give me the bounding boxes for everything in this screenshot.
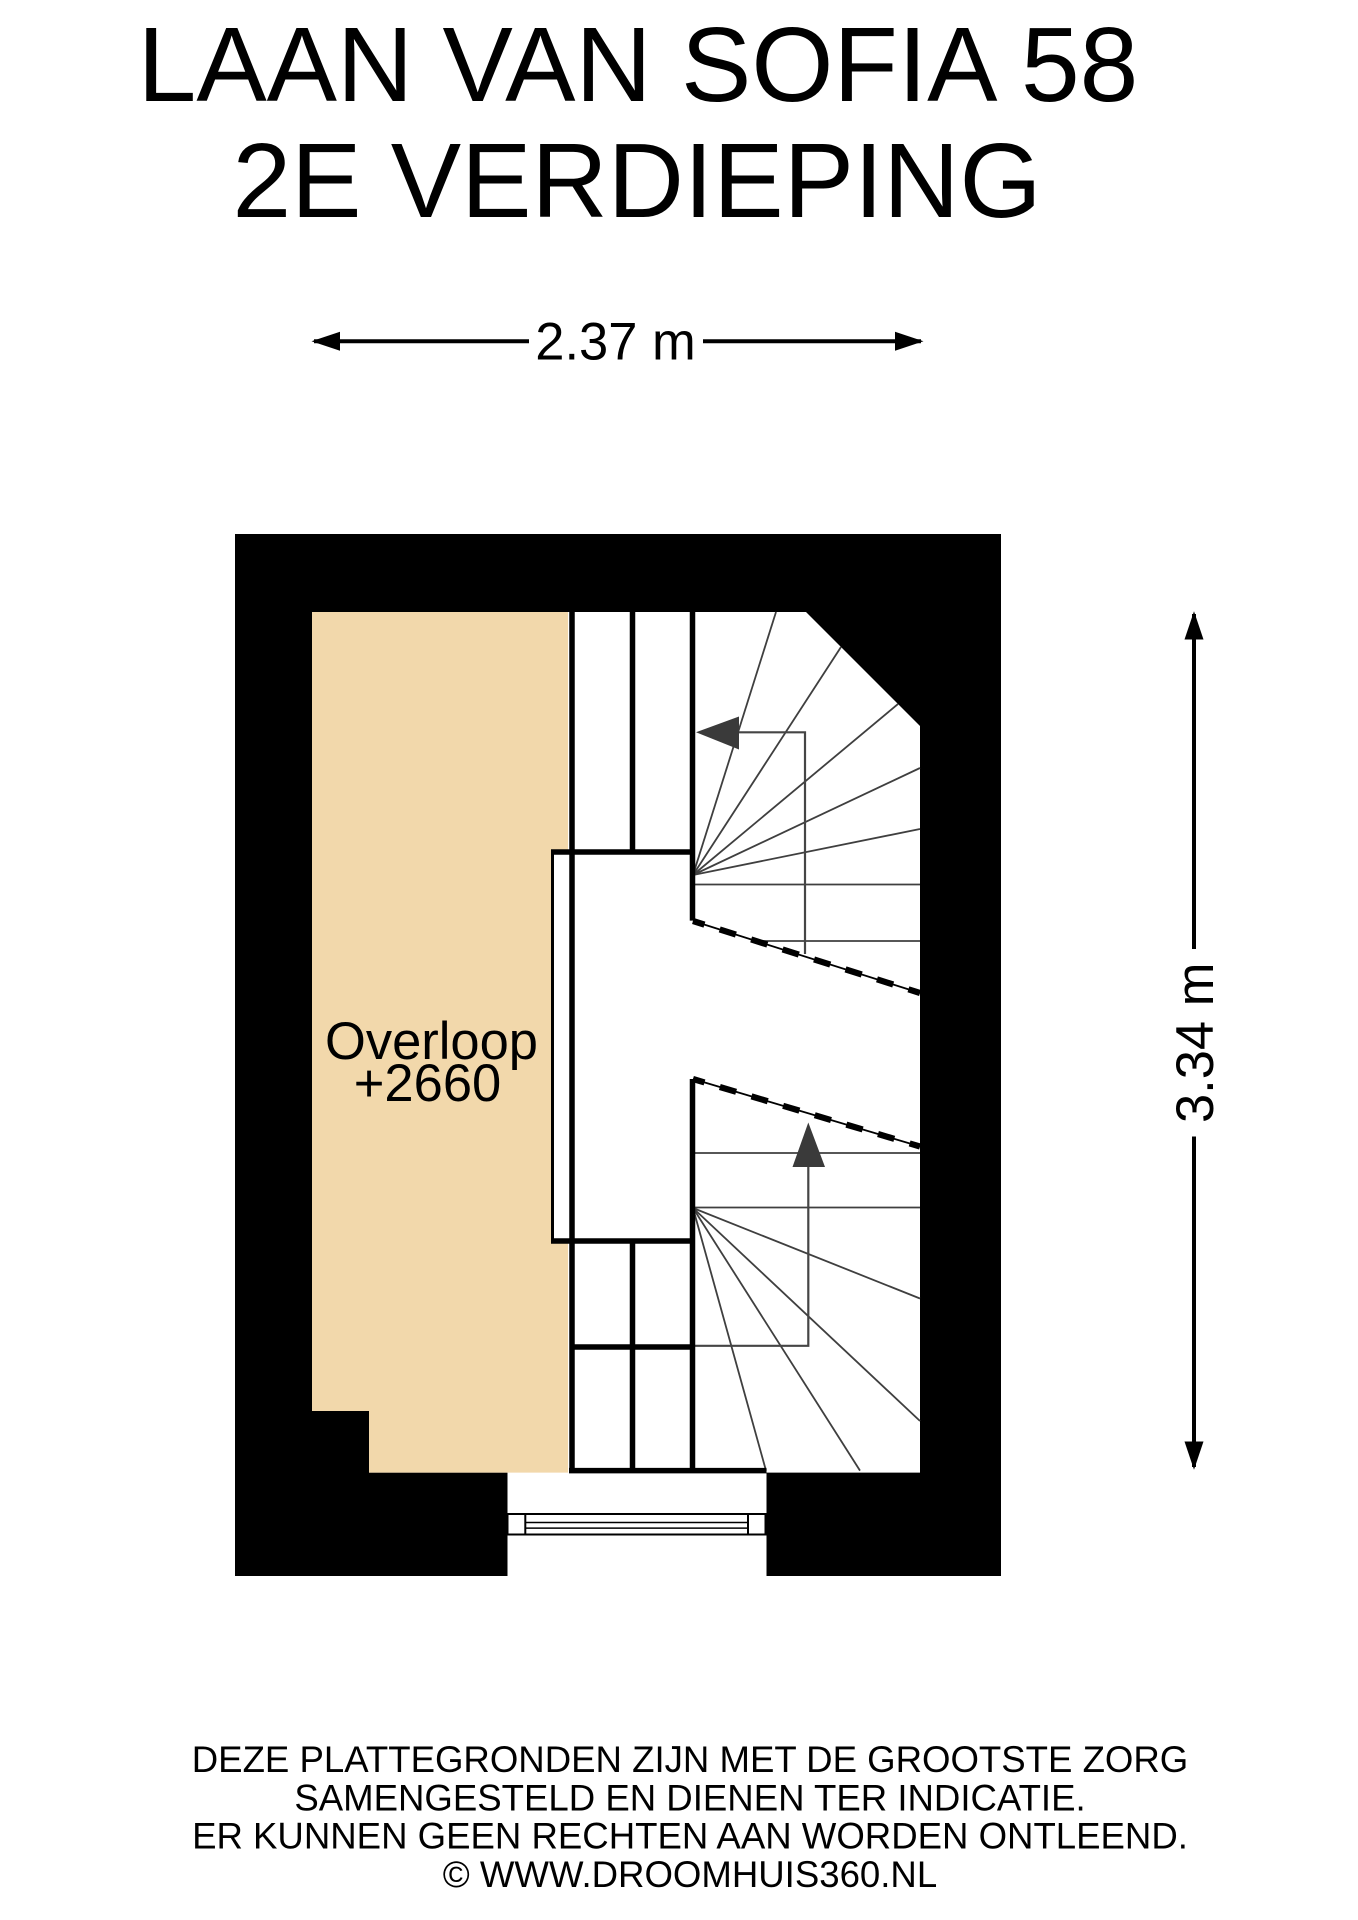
svg-text:LAAN VAN SOFIA 58: LAAN VAN SOFIA 58: [138, 6, 1139, 124]
svg-text:+2660: +2660: [354, 1054, 501, 1113]
svg-text:DEZE PLATTEGRONDEN ZIJN MET DE: DEZE PLATTEGRONDEN ZIJN MET DE GROOTSTE …: [192, 1739, 1189, 1780]
svg-text:3.34 m: 3.34 m: [1166, 963, 1225, 1124]
svg-text:© WWW.DROOMHUIS360.NL: © WWW.DROOMHUIS360.NL: [443, 1854, 937, 1895]
svg-text:2E VERDIEPING: 2E VERDIEPING: [232, 122, 1041, 240]
svg-text:2.37 m: 2.37 m: [535, 313, 696, 372]
svg-text:ER KUNNEN GEEN RECHTEN AAN WOR: ER KUNNEN GEEN RECHTEN AAN WORDEN ONTLEE…: [192, 1816, 1188, 1857]
svg-text:SAMENGESTELD EN DIENEN TER IND: SAMENGESTELD EN DIENEN TER INDICATIE.: [294, 1777, 1085, 1818]
